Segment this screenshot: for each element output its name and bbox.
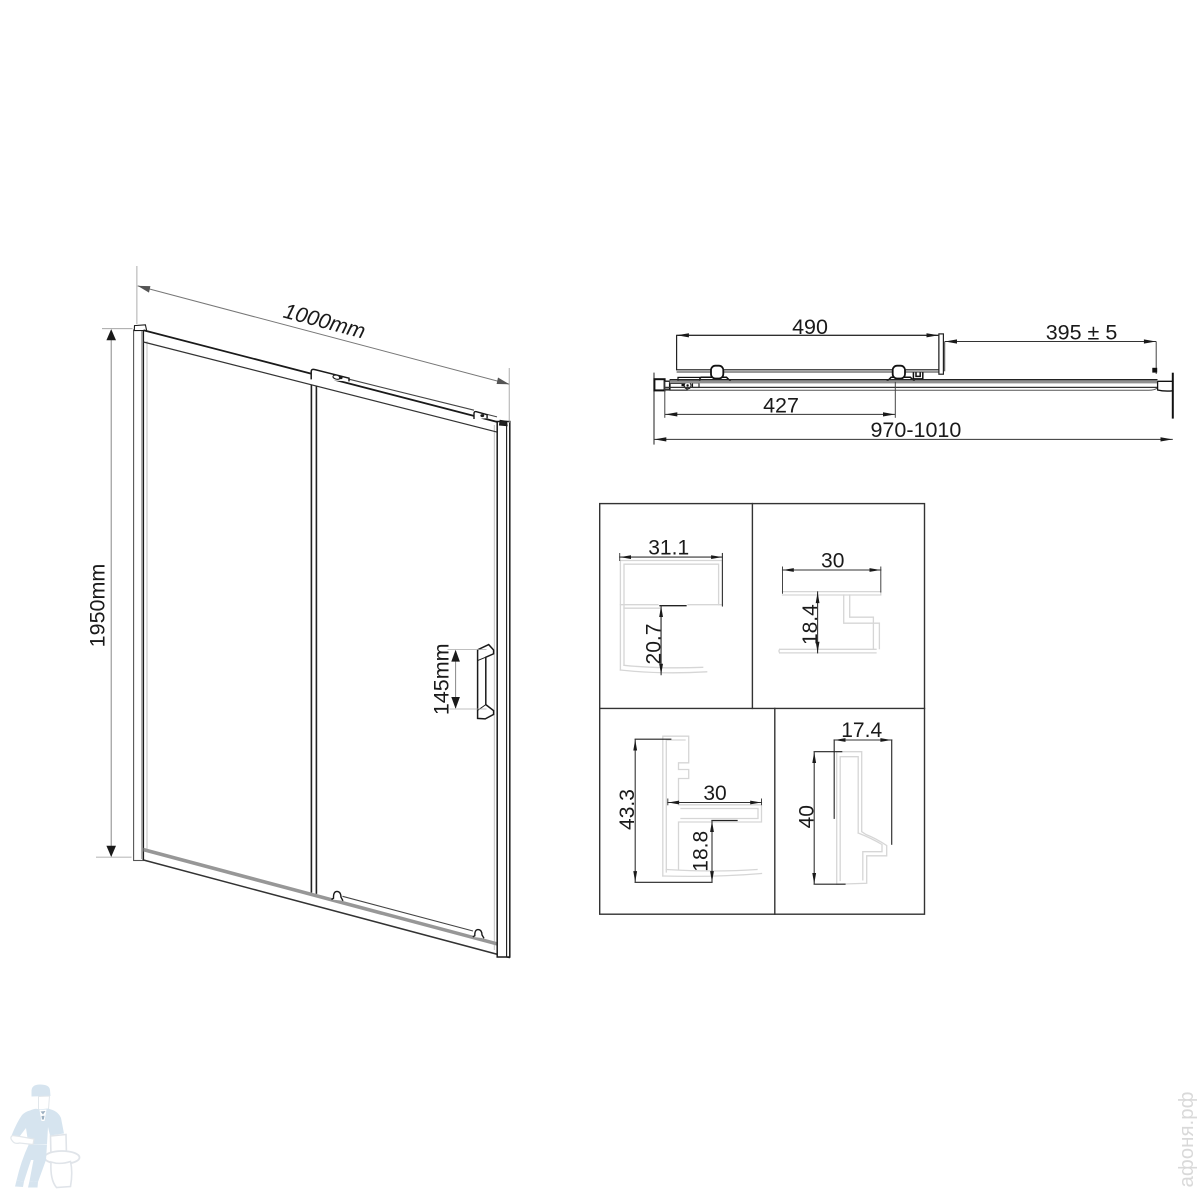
svg-text:17.4: 17.4 — [841, 719, 882, 742]
svg-text:30: 30 — [703, 782, 726, 805]
svg-text:18.4: 18.4 — [799, 604, 822, 645]
svg-text:30: 30 — [821, 549, 844, 572]
svg-text:970-1010: 970-1010 — [870, 418, 961, 442]
svg-text:18.8: 18.8 — [690, 831, 713, 872]
svg-text:395 ± 5: 395 ± 5 — [1046, 320, 1118, 344]
svg-text:145mm: 145mm — [430, 643, 454, 715]
svg-text:427: 427 — [763, 393, 799, 417]
svg-text:1000mm: 1000mm — [281, 299, 368, 344]
svg-text:43.3: 43.3 — [616, 789, 639, 830]
svg-text:1950mm: 1950mm — [86, 564, 110, 648]
svg-text:31.1: 31.1 — [648, 537, 689, 560]
svg-text:40: 40 — [795, 805, 818, 828]
svg-text:афоня.рф: афоня.рф — [1175, 1091, 1198, 1187]
svg-text:20.7: 20.7 — [643, 624, 666, 665]
svg-text:490: 490 — [792, 315, 828, 339]
